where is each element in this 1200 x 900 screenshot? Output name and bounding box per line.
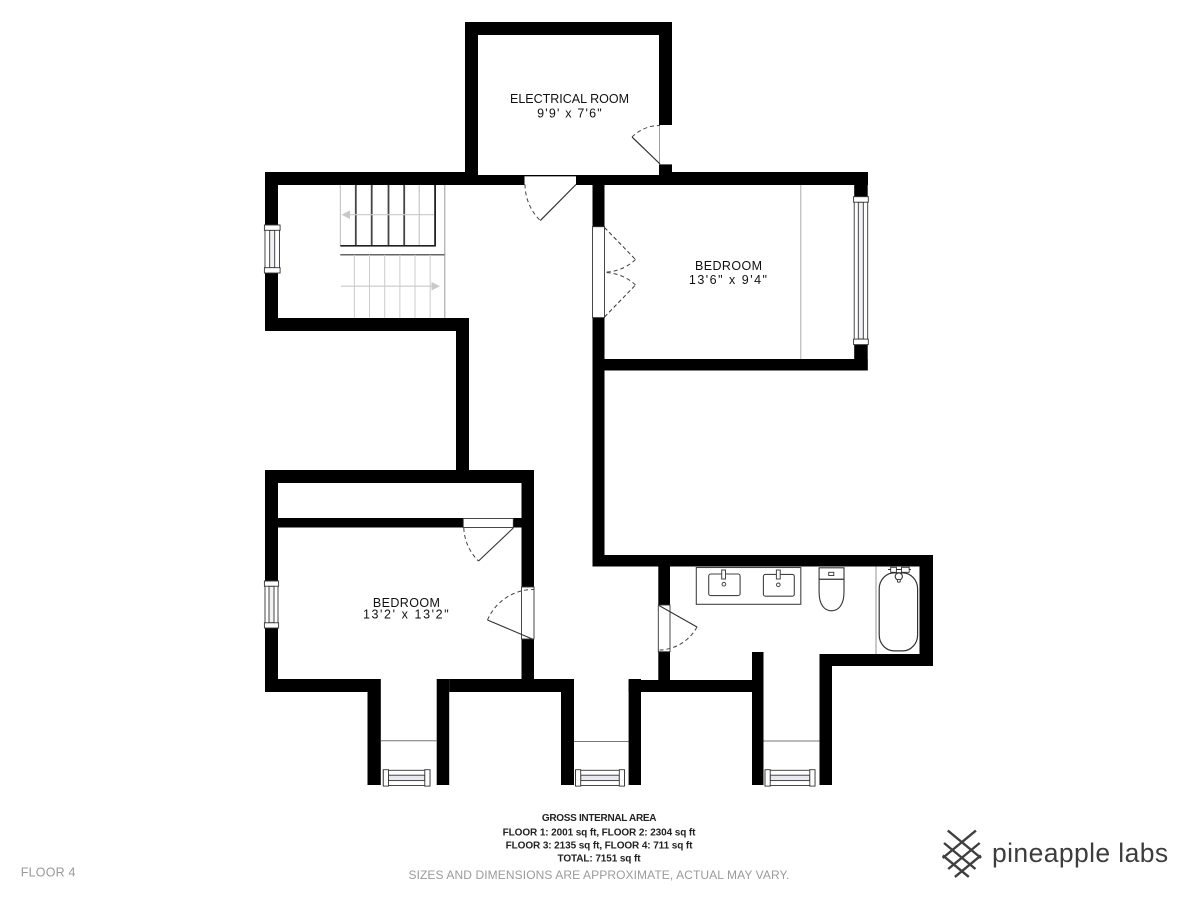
svg-text:SIZES AND DIMENSIONS ARE APPRO: SIZES AND DIMENSIONS ARE APPROXIMATE, AC… xyxy=(408,868,789,882)
svg-text:FLOOR 3: 2135 sq ft, FLOOR 4:: FLOOR 3: 2135 sq ft, FLOOR 4: 711 sq ft xyxy=(506,841,693,852)
svg-text:pineapple labs: pineapple labs xyxy=(992,838,1169,868)
svg-text:13'6" x 9'4": 13'6" x 9'4" xyxy=(689,273,769,287)
svg-text:TOTAL: 7151 sq ft: TOTAL: 7151 sq ft xyxy=(558,853,642,864)
svg-text:BEDROOM: BEDROOM xyxy=(695,259,762,273)
svg-text:9'9' x 7'6": 9'9' x 7'6" xyxy=(537,107,603,121)
svg-text:13'2' x 13'2": 13'2' x 13'2" xyxy=(363,608,450,622)
svg-text:FLOOR 4: FLOOR 4 xyxy=(21,866,76,880)
svg-text:ELECTRICAL ROOM: ELECTRICAL ROOM xyxy=(510,92,629,106)
svg-text:GROSS INTERNAL AREA: GROSS INTERNAL AREA xyxy=(542,813,656,824)
svg-text:FLOOR 1: 2001 sq ft, FLOOR 2:: FLOOR 1: 2001 sq ft, FLOOR 2: 2304 sq ft xyxy=(503,828,696,839)
